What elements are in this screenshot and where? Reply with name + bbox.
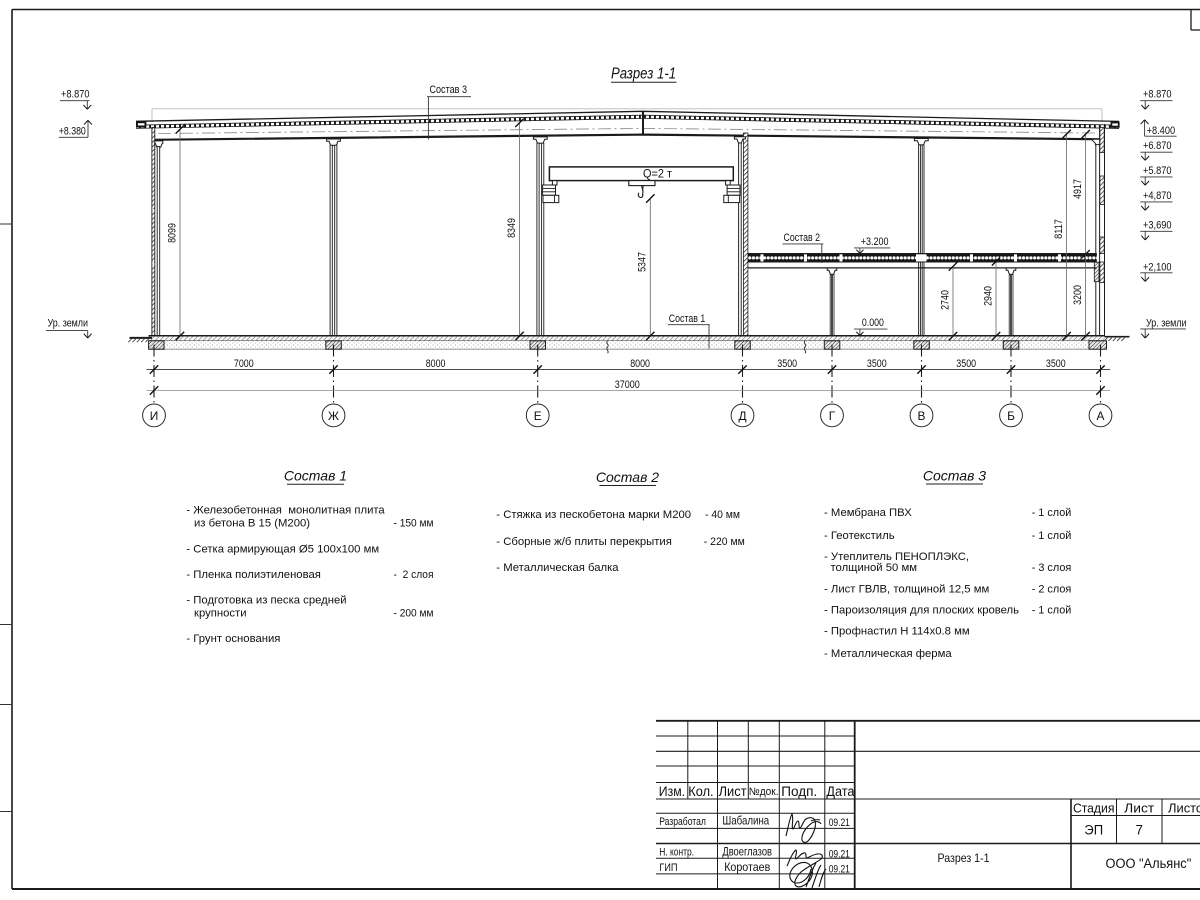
svg-text:Г: Г [829, 409, 836, 423]
svg-text:- 3 слоя: - 3 слоя [1032, 562, 1072, 574]
svg-text:8099: 8099 [166, 223, 178, 243]
svg-text:3200: 3200 [1072, 285, 1084, 305]
svg-text:8349: 8349 [506, 218, 518, 238]
svg-text:- Сетка армирующая Ø5 100х100: - Сетка армирующая Ø5 100х100 мм [186, 544, 379, 556]
svg-text:+2,100: +2,100 [1143, 261, 1172, 273]
svg-text:из бетона В 15 (М200): из бетона В 15 (М200) [194, 517, 310, 529]
svg-text:Разрез 1-1: Разрез 1-1 [611, 66, 676, 83]
svg-text:- 2 слоя: - 2 слоя [1032, 584, 1072, 596]
svg-text:Состав 2: Состав 2 [784, 232, 821, 244]
svg-text:0.000: 0.000 [862, 317, 884, 329]
svg-text:- Металлическая ферма: - Металлическая ферма [824, 648, 952, 660]
svg-text:+3.200: +3.200 [861, 236, 889, 248]
svg-text:- 1 слой: - 1 слой [1032, 605, 1072, 617]
svg-text:Двоеглазов: Двоеглазов [722, 844, 772, 858]
svg-text:Изм.: Изм. [659, 784, 685, 800]
svg-text:- Профнастил Н 114х0.8 мм: - Профнастил Н 114х0.8 мм [824, 626, 970, 638]
svg-text:- Сборные ж/б плиты перекрытия: - Сборные ж/б плиты перекрытия [496, 536, 672, 548]
svg-text:- Лист ГВЛВ, толщиной 12,5 мм: - Лист ГВЛВ, толщиной 12,5 мм [824, 584, 989, 596]
svg-text:Д: Д [738, 409, 746, 423]
svg-text:Ур. земли: Ур. земли [48, 318, 89, 330]
svg-text:Лист: Лист [719, 784, 747, 800]
svg-text:Состав 2: Состав 2 [596, 469, 659, 485]
svg-text:- Подготовка из песка средней: - Подготовка из песка средней [186, 595, 346, 607]
svg-text:2740: 2740 [939, 290, 951, 310]
svg-text:Состав 1: Состав 1 [669, 313, 706, 325]
svg-text:- Пленка полиэтиленовая: - Пленка полиэтиленовая [186, 569, 320, 581]
svg-text:ООО "Альянс": ООО "Альянс" [1106, 856, 1192, 871]
svg-text:2940: 2940 [982, 286, 994, 306]
svg-text:Дата: Дата [826, 784, 854, 800]
svg-text:ГИП: ГИП [659, 862, 677, 874]
svg-text:3500: 3500 [1046, 358, 1066, 370]
svg-text:Разработал: Разработал [659, 816, 706, 828]
svg-text:- Металлическая балка: - Металлическая балка [496, 562, 619, 574]
svg-text:Кол.: Кол. [688, 784, 713, 800]
svg-text:Подп.: Подп. [781, 784, 817, 800]
svg-text:И: И [150, 409, 159, 423]
svg-text:Ж: Ж [328, 409, 339, 423]
svg-text:- 2 слоя: - 2 слоя [394, 569, 434, 581]
svg-text:Q=2 т: Q=2 т [643, 167, 673, 180]
svg-text:+6.870: +6.870 [1143, 140, 1172, 152]
svg-text:09.21: 09.21 [829, 817, 850, 829]
svg-text:+3,690: +3,690 [1143, 220, 1172, 232]
svg-text:+5.870: +5.870 [1143, 165, 1172, 177]
svg-text:№док.: №док. [749, 786, 779, 798]
svg-text:- 40 мм: - 40 мм [705, 509, 740, 521]
svg-text:толщиной 50 мм: толщиной 50 мм [831, 562, 918, 574]
svg-text:Н. контр.: Н. контр. [659, 846, 694, 858]
svg-text:Разрез 1-1: Разрез 1-1 [938, 851, 990, 865]
svg-text:3500: 3500 [956, 358, 976, 370]
svg-text:8117: 8117 [1053, 219, 1065, 239]
svg-text:А: А [1097, 409, 1105, 423]
svg-text:ЭП: ЭП [1084, 823, 1103, 838]
svg-text:- Стяжка из пескобетона марки: - Стяжка из пескобетона марки М200 [496, 509, 691, 521]
svg-text:Коротаев: Коротаев [724, 860, 770, 874]
svg-text:Ур. земли: Ур. земли [1146, 318, 1187, 330]
svg-text:+8.380: +8.380 [59, 126, 86, 138]
svg-text:Состав 1: Состав 1 [284, 468, 347, 484]
svg-text:- 150 мм: - 150 мм [394, 517, 434, 529]
svg-text:- 1 слой: - 1 слой [1032, 530, 1072, 542]
svg-text:- 1 слой: - 1 слой [1032, 507, 1072, 519]
svg-text:3500: 3500 [777, 358, 797, 370]
svg-text:+8.400: +8.400 [1147, 125, 1176, 137]
svg-text:- Мембрана ПВХ: - Мембрана ПВХ [824, 507, 912, 519]
svg-text:Е: Е [534, 409, 542, 423]
svg-text:5347: 5347 [637, 252, 649, 272]
svg-text:- Грунт основания: - Грунт основания [186, 633, 280, 645]
svg-text:+4,870: +4,870 [1143, 190, 1172, 202]
svg-text:37000: 37000 [615, 379, 640, 391]
svg-text:Б: Б [1007, 409, 1015, 423]
svg-text:8000: 8000 [426, 358, 446, 370]
svg-text:Состав 3: Состав 3 [430, 84, 468, 96]
svg-text:09.21: 09.21 [829, 863, 850, 875]
svg-text:- Геотекстиль: - Геотекстиль [824, 530, 895, 542]
svg-text:- Пароизоляция для плоских кро: - Пароизоляция для плоских кровель [824, 605, 1019, 617]
svg-text:Лист: Лист [1124, 800, 1154, 815]
svg-text:- 200 мм: - 200 мм [394, 607, 434, 619]
svg-text:+8.870: +8.870 [1143, 88, 1172, 100]
svg-text:8000: 8000 [630, 358, 650, 370]
svg-text:3500: 3500 [867, 358, 887, 370]
svg-text:В: В [918, 409, 926, 423]
svg-text:- 220 мм: - 220 мм [704, 536, 745, 548]
svg-text:- Железобетонная монолитная п: - Железобетонная монолитная плита [186, 505, 385, 517]
svg-text:7: 7 [1135, 823, 1142, 838]
svg-text:Шабалина: Шабалина [722, 814, 769, 828]
svg-text:крупности: крупности [194, 607, 247, 619]
svg-text:Листов: Листов [1168, 800, 1200, 815]
svg-text:4917: 4917 [1072, 179, 1084, 199]
svg-text:7000: 7000 [234, 358, 254, 370]
svg-text:09.21: 09.21 [829, 848, 850, 860]
svg-text:+8.870: +8.870 [61, 88, 90, 100]
svg-text:Стадия: Стадия [1073, 800, 1115, 815]
svg-text:Состав 3: Состав 3 [923, 468, 986, 484]
